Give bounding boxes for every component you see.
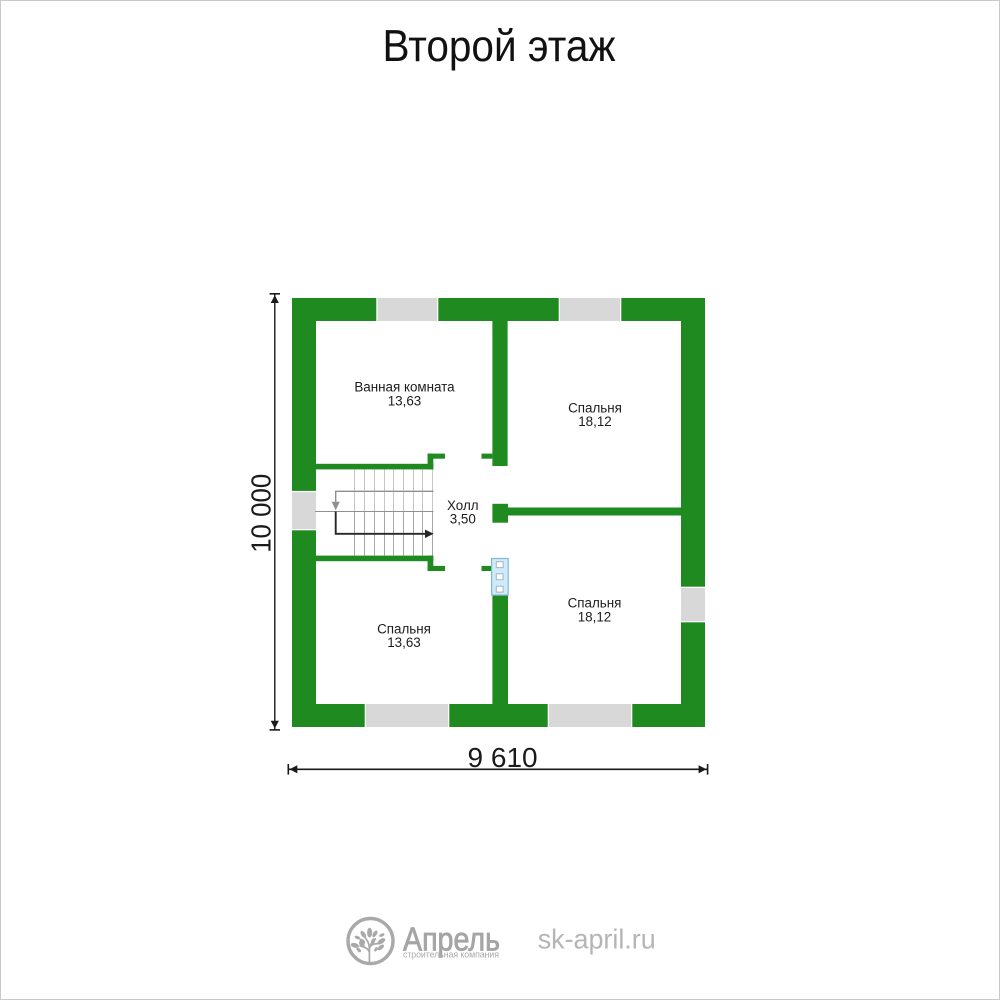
svg-text:Второй этаж: Второй этаж (383, 22, 616, 71)
svg-text:18,12: 18,12 (578, 609, 612, 624)
svg-text:Спальня: Спальня (568, 400, 622, 415)
svg-text:13,63: 13,63 (388, 393, 422, 408)
svg-text:18,12: 18,12 (578, 414, 612, 429)
svg-text:Холл: Холл (447, 498, 479, 513)
svg-text:3,50: 3,50 (450, 512, 476, 527)
svg-text:строительная компания: строительная компания (403, 950, 499, 960)
svg-text:9 610: 9 610 (468, 742, 538, 773)
svg-text:13,63: 13,63 (387, 635, 421, 650)
svg-text:sk-april.ru: sk-april.ru (538, 924, 656, 955)
svg-text:10 000: 10 000 (245, 474, 276, 553)
